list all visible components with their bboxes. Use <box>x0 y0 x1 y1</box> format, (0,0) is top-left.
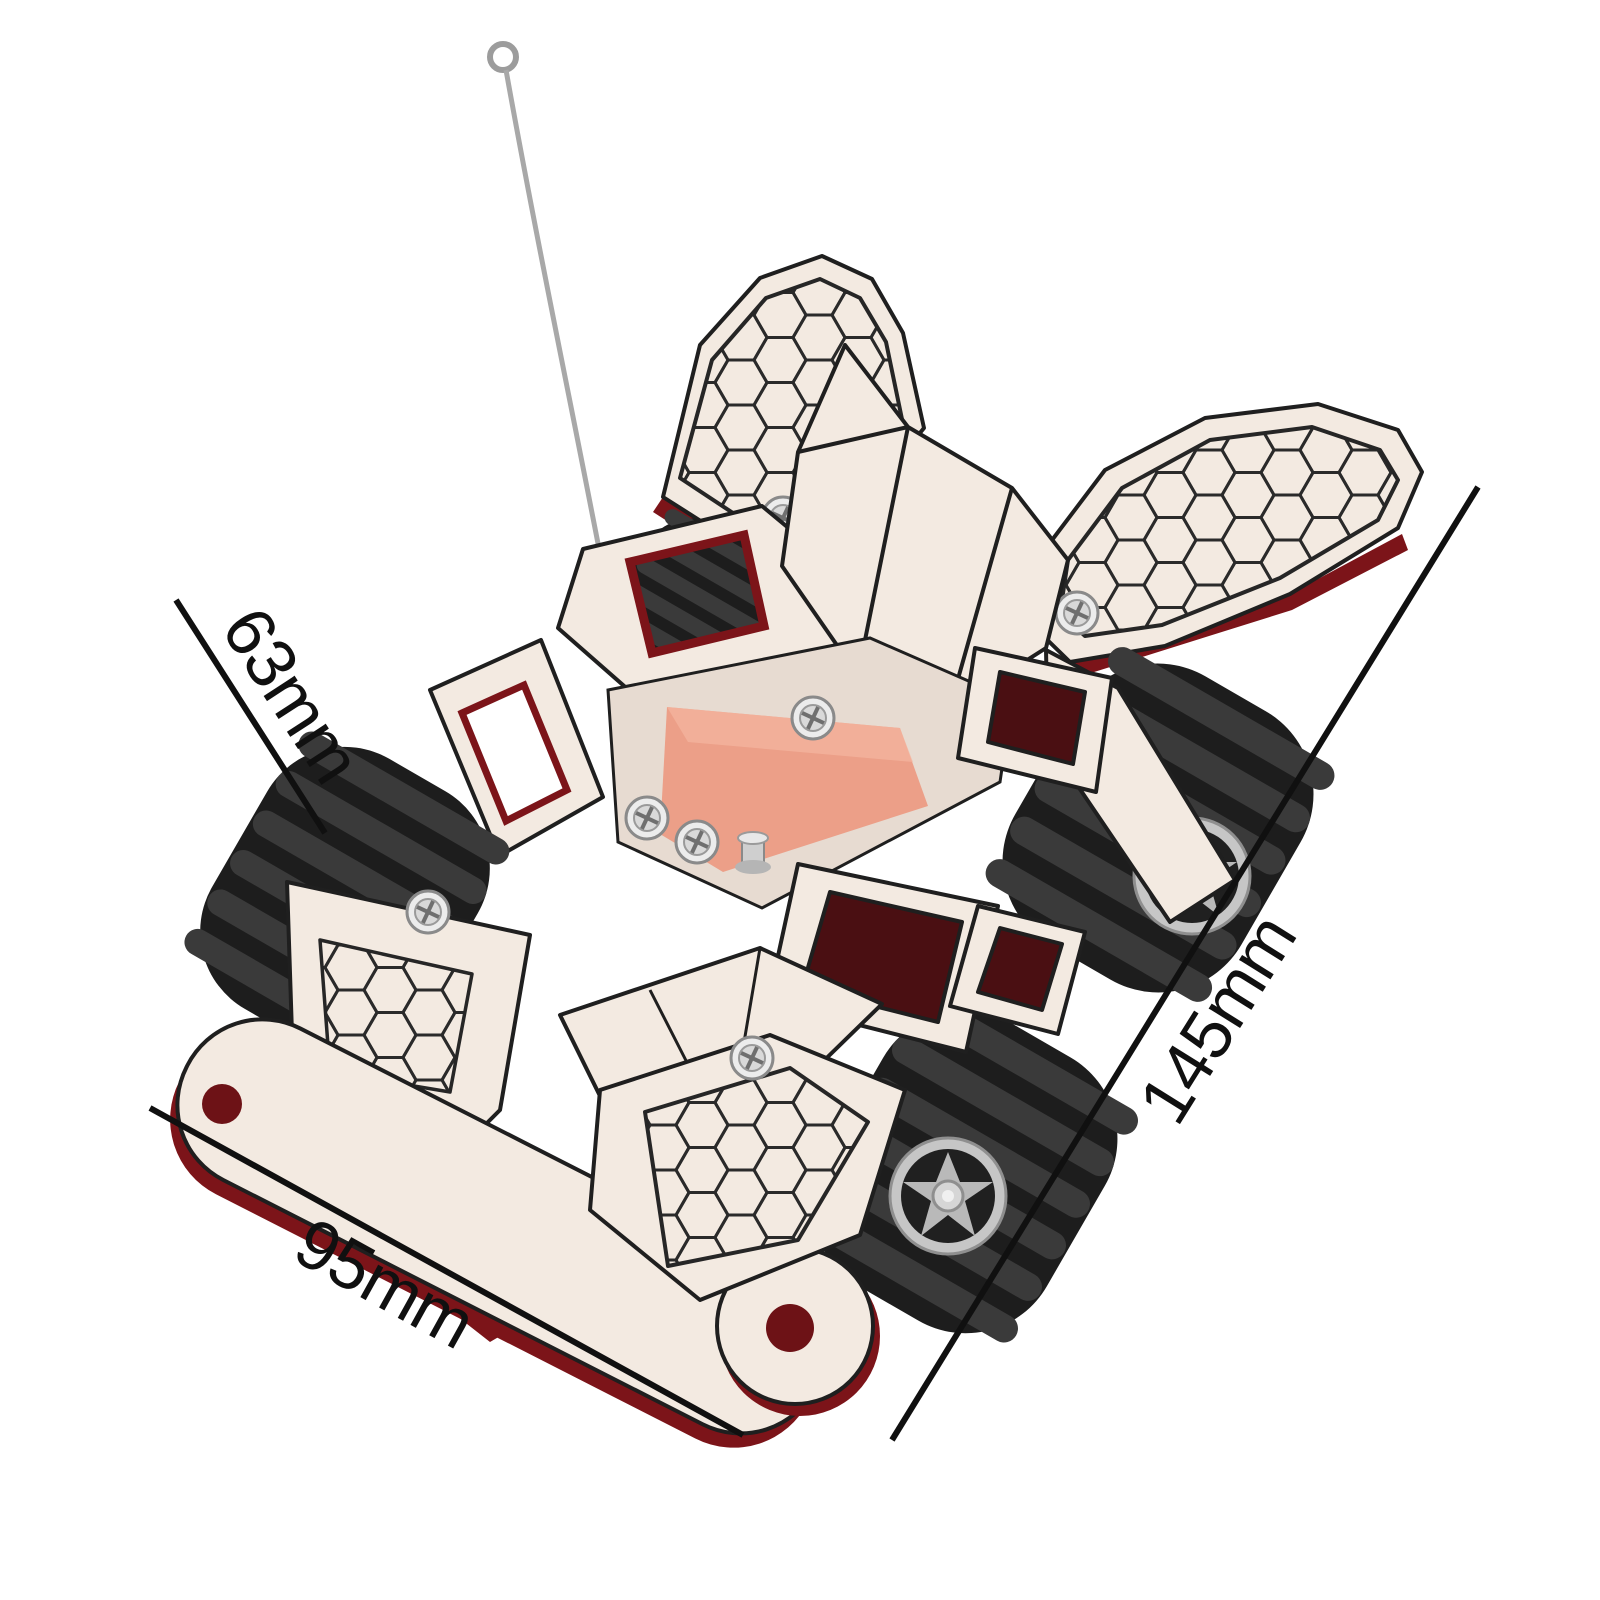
dimension-label-height: 63mm <box>207 594 376 796</box>
left-side-screw <box>407 891 449 933</box>
pcb-screw-2 <box>626 797 668 839</box>
nose-screw <box>731 1037 773 1079</box>
base-plate-hole-rear <box>202 1084 242 1124</box>
pcb-screw-1 <box>792 697 834 739</box>
right-wing-screw <box>1056 592 1098 634</box>
product-dimension-figure: 63mm 145mm 95mm <box>0 0 1600 1600</box>
pcb-screw-3 <box>676 821 718 863</box>
right-wing-panel <box>1032 404 1422 678</box>
front-wheel-hub <box>890 1138 1006 1254</box>
rc-car-illustration: 63mm 145mm 95mm <box>0 0 1600 1600</box>
antenna-loop <box>490 44 516 70</box>
base-plate-hole-front <box>766 1304 814 1352</box>
